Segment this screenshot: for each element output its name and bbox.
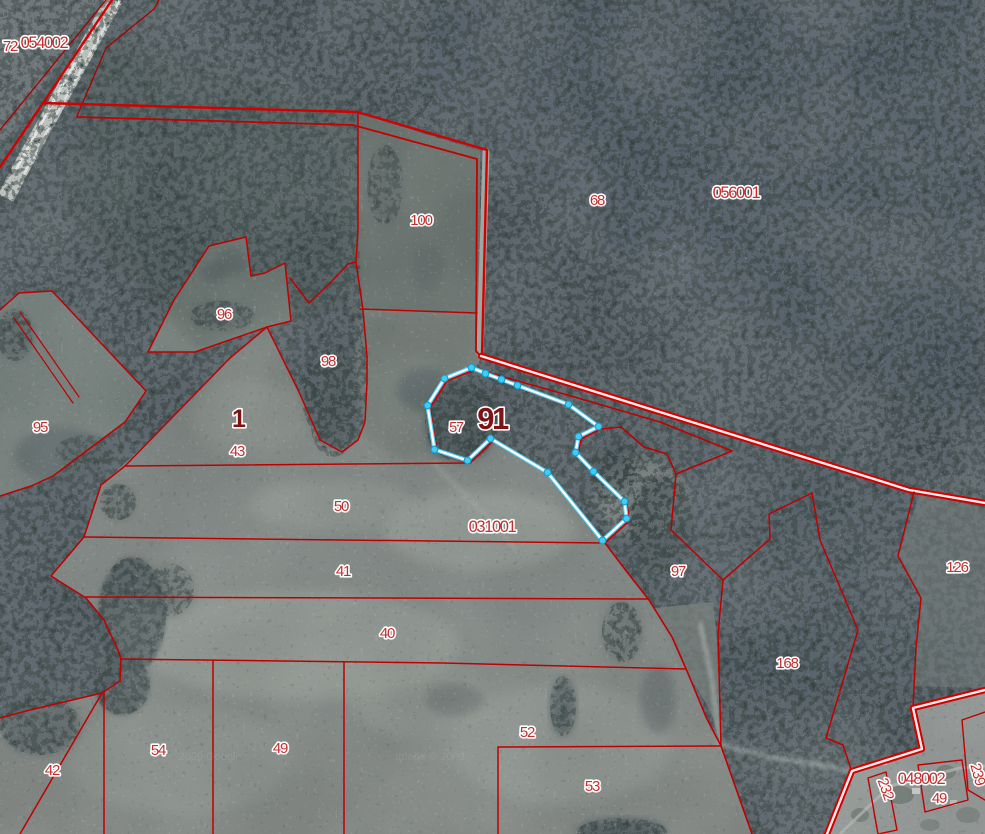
svg-text:2009 Google: 2009 Google [179,751,242,763]
svg-text:97: 97 [671,563,686,580]
svg-text:031001: 031001 [469,518,517,536]
svg-text:126: 126 [946,559,968,576]
svg-text:40: 40 [380,625,395,642]
svg-text:49: 49 [273,740,288,757]
svg-text:42: 42 [45,762,60,779]
svg-text:54: 54 [151,742,166,759]
svg-text:43: 43 [230,443,245,460]
svg-text:53: 53 [585,778,600,795]
svg-text:048002: 048002 [898,770,946,788]
svg-text:98: 98 [321,353,336,370]
svg-text:Image © 2009: Image © 2009 [395,751,464,763]
svg-text:72: 72 [3,38,18,55]
svg-text:1: 1 [232,405,246,433]
svg-text:056001: 056001 [713,184,761,202]
svg-text:52: 52 [520,724,535,741]
svg-text:Google: Google [832,686,867,698]
svg-text:41: 41 [336,563,351,580]
svg-text:054002: 054002 [21,34,69,52]
svg-text:100: 100 [410,212,432,229]
svg-text:57: 57 [449,420,464,436]
svg-text:68: 68 [590,192,605,209]
svg-text:50: 50 [334,498,349,515]
svg-text:168: 168 [776,655,798,672]
svg-text:96: 96 [217,306,232,323]
svg-text:95: 95 [33,419,48,436]
svg-text:91: 91 [477,401,509,436]
svg-text:49: 49 [932,790,947,807]
